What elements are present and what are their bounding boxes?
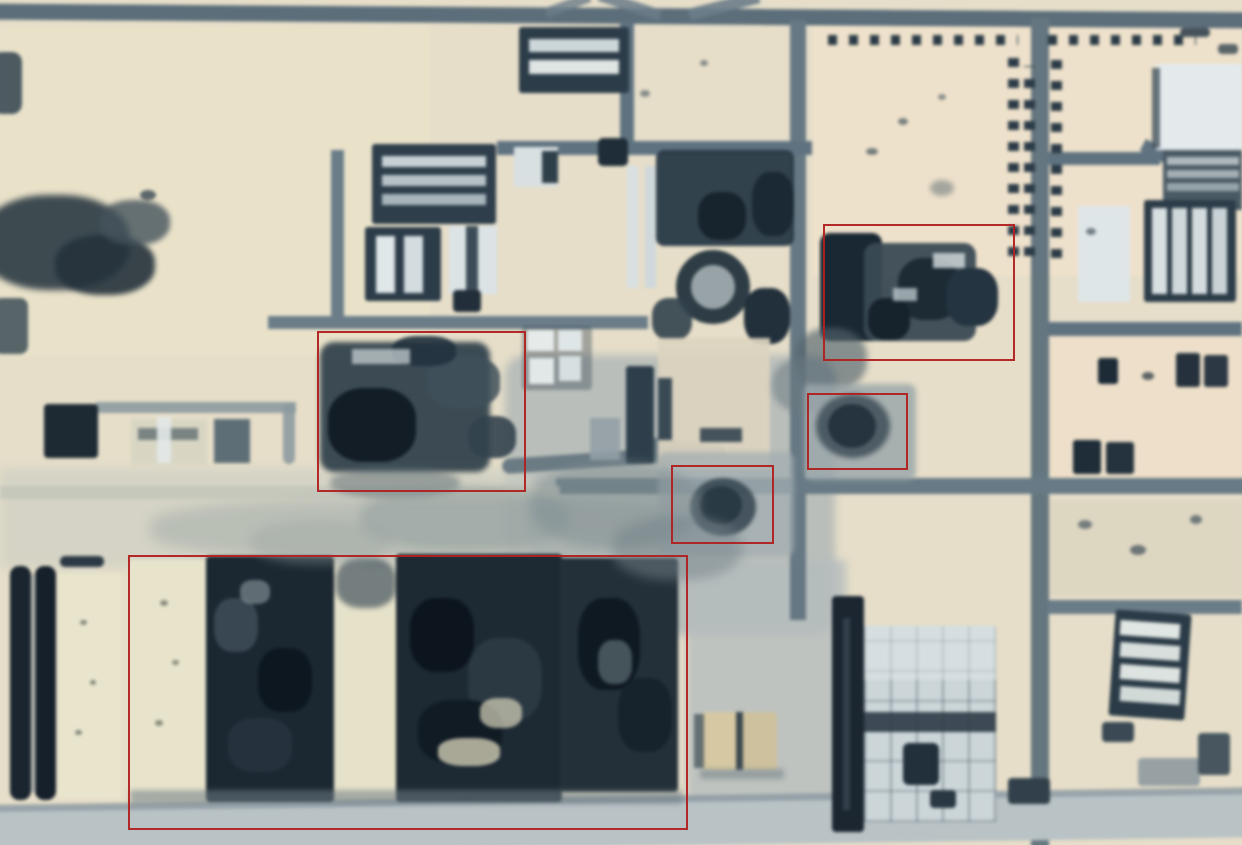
damage-box-2-annotation bbox=[823, 224, 1015, 361]
damage-box-1-annotation bbox=[317, 331, 526, 492]
damage-box-4-annotation bbox=[671, 465, 774, 544]
satellite-image bbox=[0, 0, 1242, 845]
damage-box-5-annotation bbox=[128, 555, 688, 830]
annotation-layer bbox=[0, 0, 1242, 845]
damage-box-3-annotation bbox=[807, 393, 908, 470]
